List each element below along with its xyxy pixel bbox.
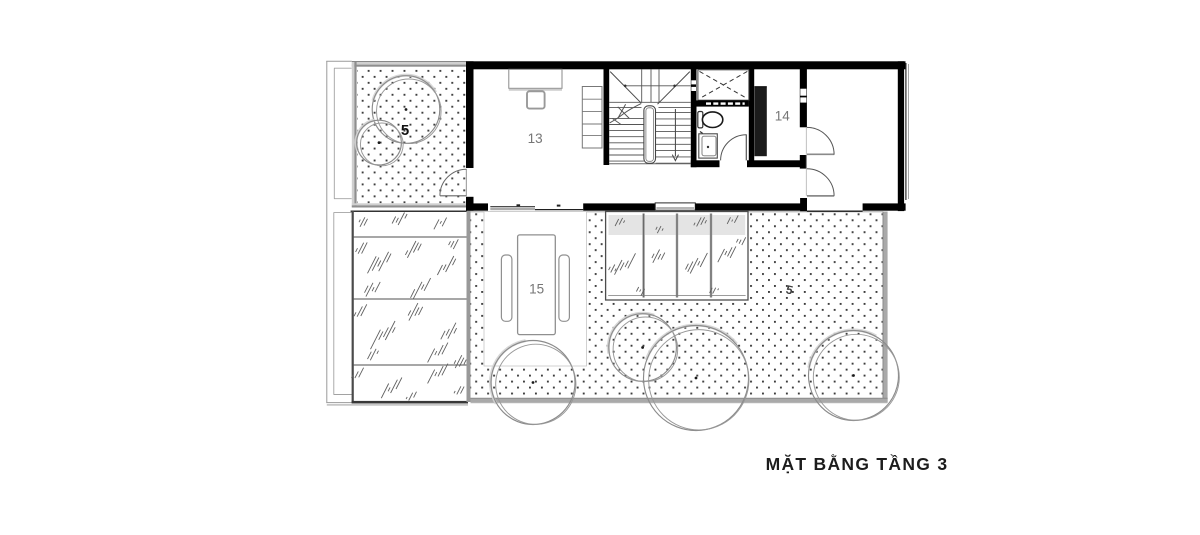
svg-text:13: 13 <box>528 131 543 146</box>
svg-text:MẶT BẰNG TẦNG 3: MẶT BẰNG TẦNG 3 <box>766 453 949 474</box>
svg-text:5: 5 <box>401 122 409 139</box>
svg-text:14: 14 <box>775 109 791 124</box>
svg-text:15: 15 <box>529 282 544 297</box>
